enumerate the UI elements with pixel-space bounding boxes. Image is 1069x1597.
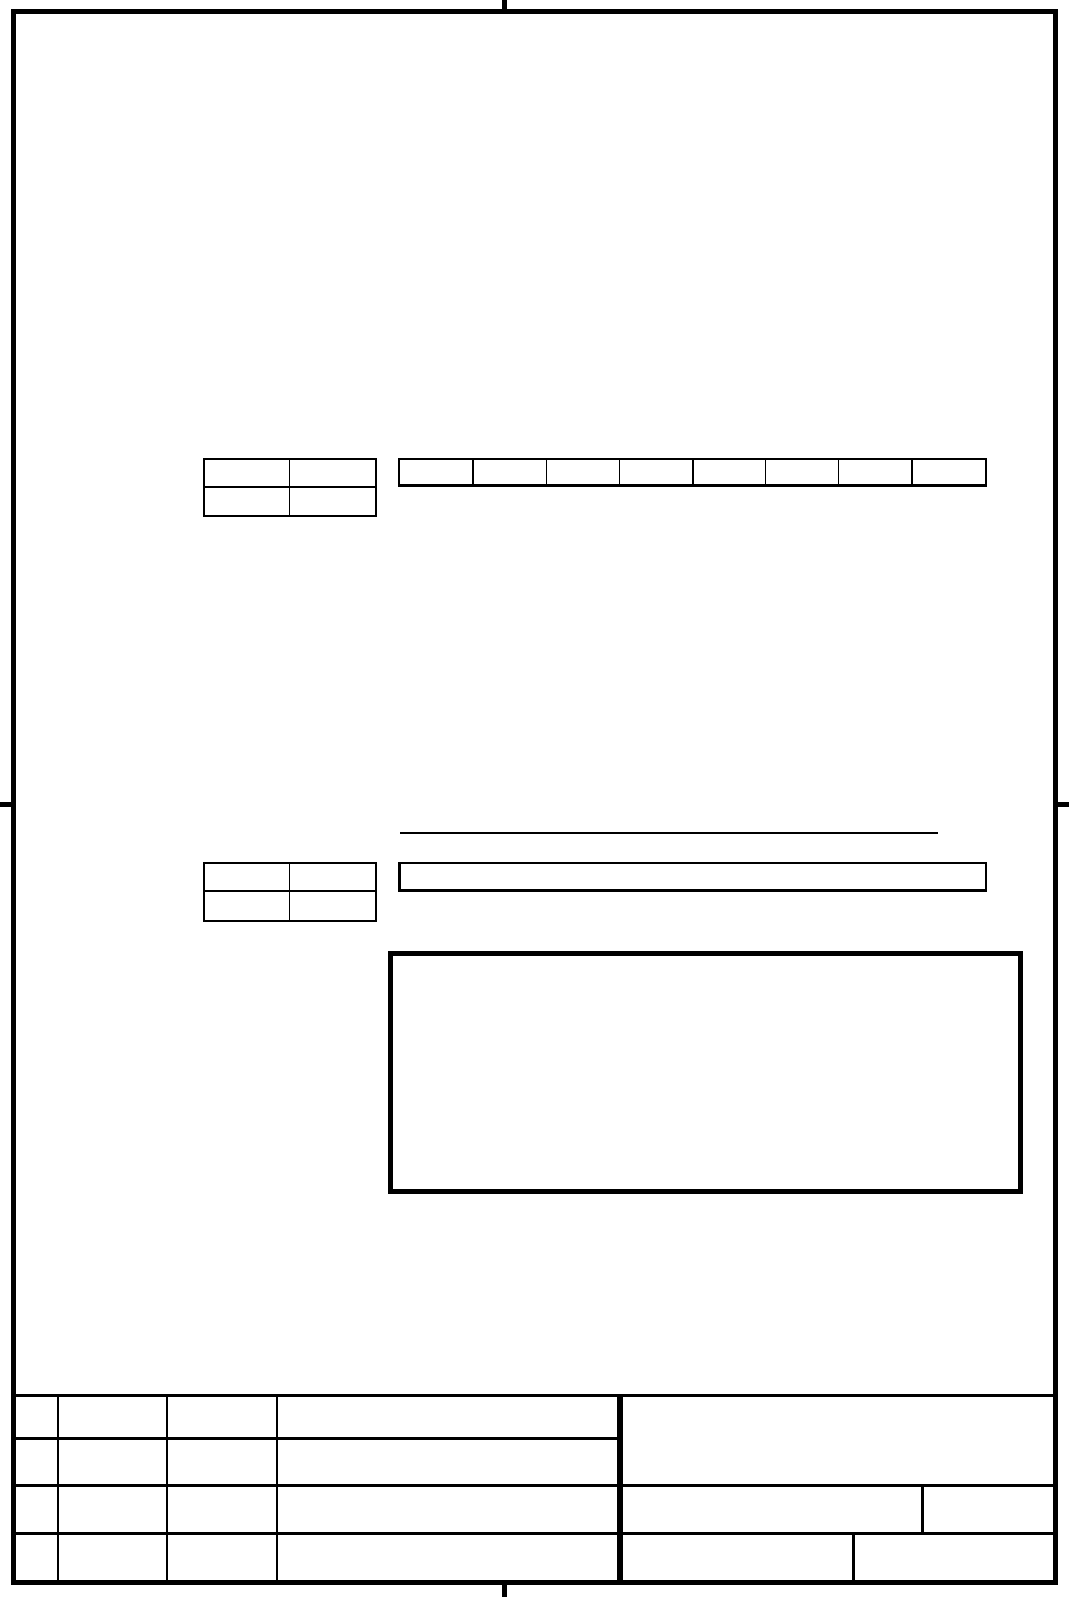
field-strip-cell — [620, 460, 694, 484]
middle-label-cell-r2c2 — [290, 892, 375, 920]
upper-label-cell-r1c2 — [290, 460, 375, 488]
titleblock-cell-r3c1 — [13, 1487, 59, 1535]
middle-label-cell-r1c1 — [205, 864, 290, 892]
middle-label-table — [203, 862, 377, 922]
titleblock-cell-r4c3 — [168, 1535, 278, 1582]
titleblock-cell-r3c2 — [59, 1487, 168, 1535]
titleblock-left-table — [13, 1394, 620, 1582]
titleblock-right-row3-cell-b — [924, 1487, 1055, 1532]
titleblock-cell-r1c3 — [168, 1397, 278, 1440]
titleblock-cell-r4c4 — [278, 1535, 620, 1582]
titleblock-right-row4-cell-b — [855, 1535, 1055, 1582]
underline-rule — [400, 832, 938, 834]
field-strip-cell — [400, 460, 474, 484]
center-tick-left — [0, 802, 11, 807]
titleblock-cell-r2c3 — [168, 1440, 278, 1487]
titleblock-cell-r4c1 — [13, 1535, 59, 1582]
center-tick-right — [1058, 802, 1069, 807]
field-strip-cell — [694, 460, 767, 484]
titleblock-cell-r2c2 — [59, 1440, 168, 1487]
titleblock-right-row3-cell-a — [623, 1487, 924, 1532]
titleblock-cell-r4c2 — [59, 1535, 168, 1582]
titleblock-cell-r3c3 — [168, 1487, 278, 1535]
drawing-frame — [11, 9, 1058, 1585]
center-tick-top — [502, 0, 507, 9]
field-strip-cell — [547, 460, 620, 484]
field-strip-cell — [766, 460, 839, 484]
figure-box — [388, 951, 1023, 1194]
field-strip-cell — [913, 460, 985, 484]
titleblock-cell-r3c4 — [278, 1487, 620, 1535]
titleblock-cell-r1c1 — [13, 1397, 59, 1440]
titleblock-cell-r2c1 — [13, 1440, 59, 1487]
titleblock-cell-r1c4 — [278, 1397, 620, 1440]
titleblock-right-main-cell — [623, 1397, 1055, 1487]
underlined-title-text — [400, 810, 938, 830]
field-strip-cell — [839, 460, 913, 484]
scanned-form-page — [0, 0, 1069, 1597]
titleblock-cell-r1c2 — [59, 1397, 168, 1440]
upper-label-cell-r1c1 — [205, 460, 290, 488]
upper-label-table — [203, 458, 377, 517]
upper-label-cell-r2c1 — [205, 488, 290, 516]
entry-box — [398, 862, 987, 892]
field-strip — [398, 458, 987, 487]
titleblock-right-section — [620, 1394, 1055, 1582]
center-tick-bottom — [502, 1585, 507, 1597]
titleblock-right-row4-cell-a — [623, 1535, 855, 1582]
titleblock-cell-r2c4 — [278, 1440, 620, 1487]
field-strip-cell — [474, 460, 547, 484]
middle-label-cell-r1c2 — [290, 864, 375, 892]
middle-label-cell-r2c1 — [205, 892, 290, 920]
upper-label-cell-r2c2 — [290, 488, 375, 516]
